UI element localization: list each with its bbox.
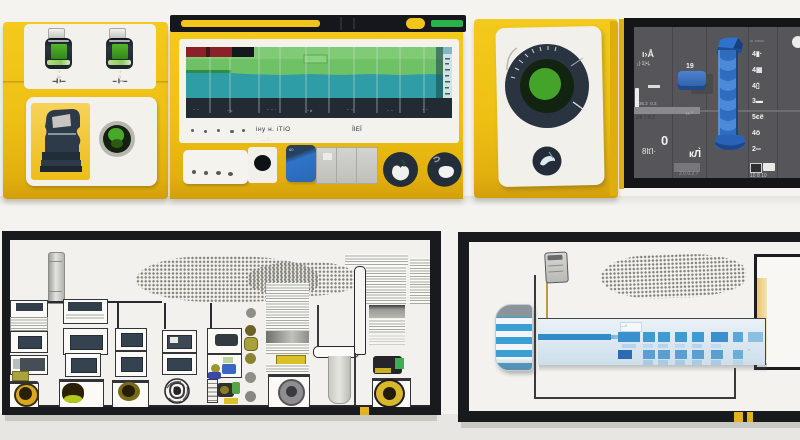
- svg-text:・・: ・・: [386, 109, 394, 114]
- svg-text:・・: ・・: [192, 108, 200, 113]
- svg-text:・ʊ: ・ʊ: [226, 109, 233, 114]
- svg-text:・・: ・・: [421, 108, 429, 113]
- svg-text:・・·: ・・·: [266, 108, 276, 113]
- svg-text:・・: ・・: [346, 108, 354, 113]
- svg-text:・ӥ: ・ӥ: [306, 109, 313, 114]
